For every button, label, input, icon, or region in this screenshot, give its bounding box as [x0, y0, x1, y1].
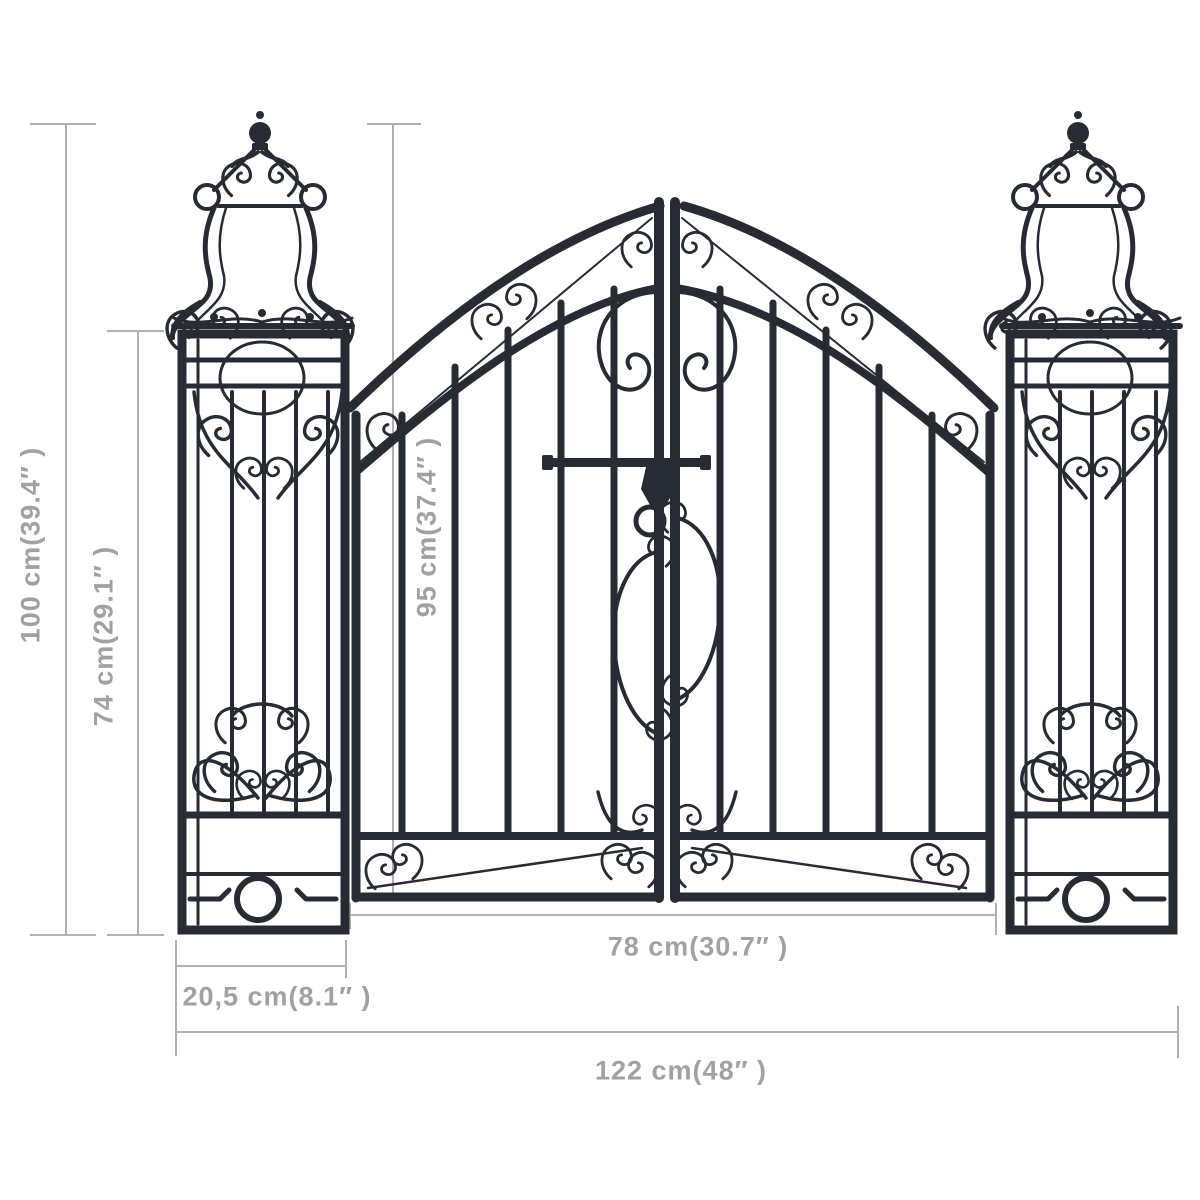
outer-arch-right — [684, 206, 994, 408]
dim-line-total-width — [176, 1006, 1178, 1058]
bottom-band — [366, 844, 968, 888]
right-door-bars — [720, 289, 932, 836]
gate — [167, 111, 1180, 930]
dim-label-pillar-width: 20,5 cm(8.1″ ) — [182, 982, 371, 1013]
left-horn-scroll — [599, 292, 655, 390]
dim-label-pillar-height: 74 cm(29.1″ ) — [89, 546, 120, 727]
dim-label-total-width: 122 cm(48″ ) — [595, 1056, 767, 1087]
right-finial — [985, 111, 1171, 348]
product-dimension-diagram: 100 cm(39.4″ ) 74 cm(29.1″ ) 95 cm(37.4″… — [0, 0, 1200, 1200]
dim-label-total-height: 100 cm(39.4″ ) — [16, 447, 47, 644]
right-pillar — [1002, 309, 1180, 930]
dim-label-gate-width: 78 cm(30.7″ ) — [608, 932, 789, 963]
right-horn-scroll — [679, 292, 735, 390]
latch-lock-body — [641, 467, 675, 505]
left-pillar — [174, 309, 352, 930]
gate-dimension-diagram — [0, 0, 1200, 1200]
gate-doors — [350, 202, 994, 898]
dim-label-gate-height: 95 cm(37.4″ ) — [412, 437, 443, 618]
center-scroll-ornament — [614, 502, 720, 740]
dim-line-gate-width — [350, 903, 996, 935]
